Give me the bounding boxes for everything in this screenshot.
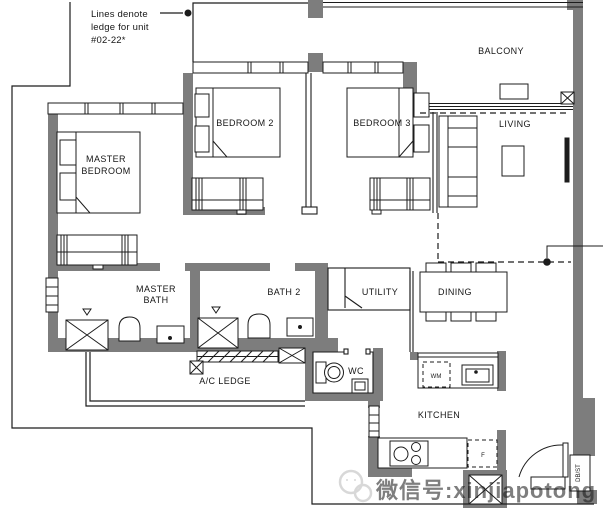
annotation-line1: Lines denote <box>91 9 148 20</box>
label-utility: UTILITY <box>362 287 398 297</box>
sofa <box>439 116 477 207</box>
master-shower-head-icon <box>83 309 91 315</box>
bedroom2-wardrobe <box>192 178 263 210</box>
label-wc: WC <box>348 366 364 376</box>
stove-burner-small-2 <box>412 456 421 465</box>
bedroom2-pillow-1 <box>195 94 209 117</box>
annotation-dot <box>185 10 192 17</box>
label-ac-ledge: A/C LEDGE <box>199 376 251 386</box>
bedroom3-wardrobe <box>370 178 430 210</box>
master-wardrobe-tab <box>93 265 103 269</box>
bedroom3-living-wall <box>433 112 437 213</box>
bedroom2-bedroom3-wall <box>306 73 311 207</box>
dining-chair <box>426 263 446 272</box>
coffee-table <box>502 146 524 176</box>
dining-chair <box>476 263 496 272</box>
bath2-sink-drain <box>299 326 302 329</box>
bath2-shower-head-icon <box>212 307 220 313</box>
master-bed-pillow-2 <box>60 173 76 200</box>
kitchen-sink-basin <box>466 369 489 382</box>
label-master-bath-1: MASTER <box>136 284 176 294</box>
annotation: Lines denote ledge for unit #02-22* <box>91 9 192 46</box>
bedroom3-window <box>323 62 403 73</box>
entry-door-swing <box>519 445 563 477</box>
ledge-reference-dot <box>543 258 551 266</box>
wechat-logo-icon <box>340 471 371 501</box>
dining-chair <box>451 263 471 272</box>
bath2-toilet <box>248 314 270 338</box>
annotation-line2: ledge for unit <box>91 22 149 33</box>
annotation-line3: #02-22* <box>91 35 126 46</box>
balcony-fixture <box>500 84 528 99</box>
wc-sink-inner <box>355 382 365 390</box>
dining-chair <box>426 312 446 321</box>
wc-door-tab-left <box>344 349 348 354</box>
label-fridge: F <box>481 453 485 459</box>
label-master-bedroom-2: BEDROOM <box>81 166 130 176</box>
tv <box>565 138 569 182</box>
bedroom3-wardrobe-tab <box>372 210 381 214</box>
master-bath-window <box>46 278 58 312</box>
label-living: LIVING <box>499 119 531 129</box>
label-dining: DINING <box>438 287 472 297</box>
label-balcony: BALCONY <box>478 46 524 56</box>
master-toilet <box>119 317 140 341</box>
master-bed-pillow-1 <box>60 140 76 165</box>
balcony-parapet <box>323 3 583 8</box>
balcony-sliding-door <box>417 104 573 110</box>
bedroom2-wardrobe-tab <box>237 210 246 214</box>
bedroom-wall-foot <box>302 207 317 214</box>
kitchen-window <box>369 406 379 437</box>
living-furniture <box>439 116 569 207</box>
dining-chair <box>476 312 496 321</box>
label-bath2: BATH 2 <box>267 287 300 297</box>
label-master-bath-2: BATH <box>144 295 169 305</box>
label-kitchen: KITCHEN <box>418 410 460 420</box>
ledge-top-rect <box>193 3 308 62</box>
label-master-bedroom-1: MASTER <box>86 154 126 164</box>
wc-door-tab-right <box>366 349 370 354</box>
bedroom3-pillow-2 <box>414 125 429 152</box>
master-sink-drain <box>169 337 172 340</box>
entry-door-leaf <box>563 443 568 477</box>
dining-chair <box>451 312 471 321</box>
master-sink <box>157 326 184 343</box>
wc-toilet-bowl-inner <box>328 367 340 379</box>
label-washing-machine: WM <box>431 374 442 380</box>
label-bedroom2: BEDROOM 2 <box>216 118 274 128</box>
stove-burner-large <box>394 447 408 461</box>
master-bedroom-window <box>48 103 183 114</box>
bedroom-furniture <box>57 88 430 269</box>
floor-plan-canvas: Lines denote ledge for unit #02-22* MAST… <box>0 0 603 512</box>
watermark-text: 微信号:xinjiapotong <box>375 478 596 503</box>
hall-kitchen-divider <box>410 271 413 352</box>
floor-plan: Lines denote ledge for unit #02-22* MAST… <box>0 0 603 512</box>
bedroom2-pillow-2 <box>195 126 209 152</box>
label-bedroom3: BEDROOM 3 <box>353 118 411 128</box>
kitchen-sink-drain <box>475 371 478 374</box>
stove-burner-small-1 <box>412 443 421 452</box>
